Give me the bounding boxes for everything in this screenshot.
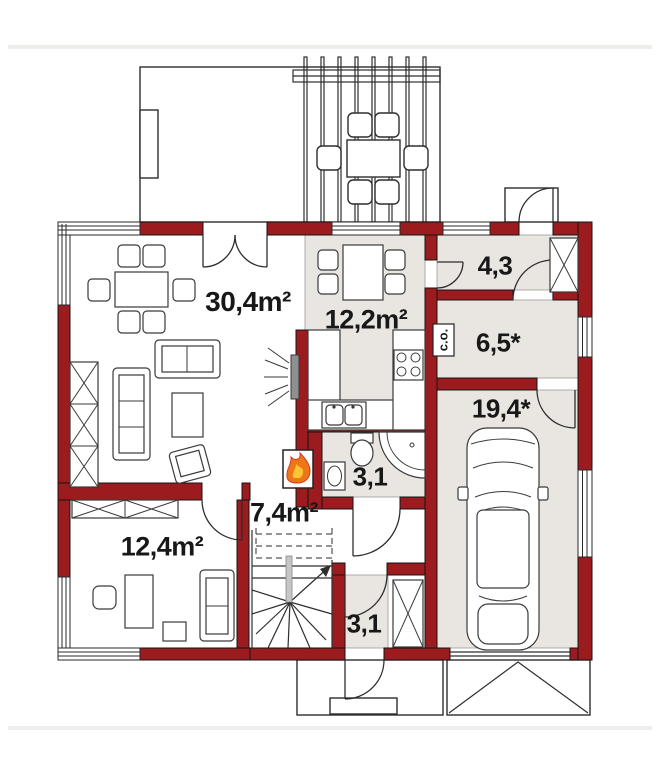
- dining-chair: [173, 279, 195, 301]
- entry-porch-bottom: [297, 660, 443, 715]
- dining-chair: [118, 311, 140, 333]
- car-mirror: [538, 487, 548, 500]
- kitchen-chair: [318, 250, 338, 270]
- kitchen-table: [343, 245, 383, 300]
- stairs-up-arrow: [320, 565, 331, 577]
- entrance-closet: [550, 238, 578, 292]
- toilet: [351, 433, 373, 466]
- kitchen-chair: [385, 274, 405, 294]
- stairs: [252, 528, 332, 648]
- dining-chair: [143, 245, 165, 267]
- dining-table: [115, 272, 168, 307]
- garage-door: [450, 652, 570, 656]
- fireplace-icon: [283, 450, 313, 488]
- armchair: [168, 444, 211, 484]
- bedroom-furniture: [93, 570, 234, 641]
- bedroom-door: [202, 500, 242, 540]
- side-table: [163, 622, 186, 641]
- vestibule-closet: [393, 580, 423, 647]
- desk-chair: [93, 586, 116, 609]
- desk: [125, 575, 153, 628]
- car-mirror: [458, 487, 468, 500]
- kitchen-sink: [322, 402, 366, 428]
- terrace-french-door: [203, 235, 267, 267]
- garage-window: [578, 470, 592, 557]
- coffee-table: [172, 393, 203, 437]
- washbasin: [324, 462, 345, 490]
- driveway: [447, 660, 590, 715]
- floor-plan-drawing: [0, 0, 660, 774]
- page-rule-top: [8, 45, 652, 49]
- dining-chair: [143, 311, 165, 333]
- page-rule-bottom: [8, 726, 652, 730]
- bedroom-wardrobe: [72, 500, 178, 518]
- car: [458, 428, 548, 650]
- kitchen-window: [332, 222, 400, 235]
- living-room-furniture: [88, 245, 313, 488]
- living-room-wardrobe: [70, 362, 98, 487]
- entry-porch-top: [505, 188, 558, 222]
- kitchen-chair: [385, 250, 405, 270]
- bathroom-door: [353, 509, 400, 556]
- stove: [394, 350, 423, 380]
- boiler-room-floor: [437, 300, 578, 378]
- stair-rail: [286, 556, 292, 602]
- boiler-unit: [433, 324, 454, 356]
- entrance-hall-window: [443, 222, 490, 235]
- floor-plan-canvas: 30,4m² 12,2m² 4,3 6,5* 19,4* 3,1 7,4m² 1…: [0, 0, 660, 774]
- kitchen-chair: [318, 274, 338, 294]
- dining-chair: [88, 279, 110, 301]
- tv: [264, 348, 299, 406]
- boiler-room-window: [578, 317, 592, 357]
- dining-chair: [118, 245, 140, 267]
